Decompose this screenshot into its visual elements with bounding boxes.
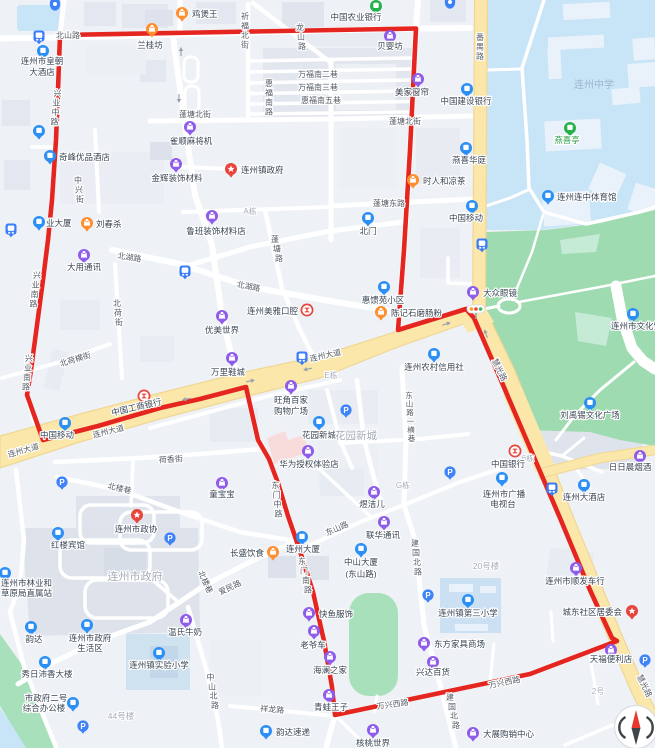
svg-text:连州市林业和: 连州市林业和 bbox=[1, 578, 52, 588]
svg-text:东方家具商场: 东方家具商场 bbox=[434, 639, 485, 649]
svg-text:连州市政府: 连州市政府 bbox=[108, 569, 163, 583]
svg-text:万福南二巷: 万福南二巷 bbox=[298, 69, 338, 79]
svg-text:惠馈苑小区: 惠馈苑小区 bbox=[362, 295, 405, 305]
svg-text:购物广场: 购物广场 bbox=[274, 406, 308, 416]
svg-text:天福便利店: 天福便利店 bbox=[590, 654, 633, 664]
svg-text:快鱼服饰: 快鱼服饰 bbox=[319, 609, 354, 619]
svg-text:贝婴坊: 贝婴坊 bbox=[377, 41, 403, 51]
svg-text:蓬塘北街: 蓬塘北街 bbox=[389, 116, 421, 126]
svg-text:兴达百货: 兴达百货 bbox=[416, 667, 451, 677]
svg-text:花园新城: 花园新城 bbox=[302, 430, 337, 440]
svg-text:大酒店: 大酒店 bbox=[29, 67, 55, 77]
svg-text:草原局直属站: 草原局直属站 bbox=[1, 588, 53, 598]
svg-text:祥龙路: 祥龙路 bbox=[260, 703, 285, 715]
svg-text:童宝宝: 童宝宝 bbox=[209, 489, 235, 499]
svg-text:G栋: G栋 bbox=[396, 480, 410, 490]
svg-text:花园新城: 花园新城 bbox=[335, 429, 377, 442]
svg-text:时人和凉茶: 时人和凉茶 bbox=[423, 176, 466, 186]
svg-text:连州中学: 连州中学 bbox=[574, 78, 614, 91]
svg-text:城东社区居委会: 城东社区居委会 bbox=[562, 607, 622, 617]
svg-text:生活区: 生活区 bbox=[77, 643, 103, 653]
svg-text:连州市广播: 连州市广播 bbox=[483, 489, 526, 499]
svg-text:连州市顺发车行: 连州市顺发车行 bbox=[545, 576, 605, 586]
svg-text:荷香街: 荷香街 bbox=[158, 453, 183, 465]
svg-text:刘春杀: 刘春杀 bbox=[96, 219, 122, 229]
svg-text:兰桂坊: 兰桂坊 bbox=[137, 40, 163, 50]
svg-text:电视台: 电视台 bbox=[490, 499, 516, 509]
svg-text:联华通讯: 联华通讯 bbox=[366, 530, 401, 540]
svg-text:惠福南路: 惠福南路 bbox=[265, 78, 273, 117]
svg-text:中国建设银行: 中国建设银行 bbox=[440, 96, 492, 106]
svg-text:温氏牛奶: 温氏牛奶 bbox=[168, 627, 202, 637]
svg-text:市政府二号: 市政府二号 bbox=[25, 693, 68, 703]
svg-text:连州市文化馆: 连州市文化馆 bbox=[611, 321, 655, 331]
svg-text:海澜之家: 海澜之家 bbox=[313, 665, 348, 675]
svg-text:老爷车: 老爷车 bbox=[300, 640, 326, 650]
svg-text:中山大厦: 中山大厦 bbox=[344, 557, 379, 567]
svg-text:青蛙王子: 青蛙王子 bbox=[314, 702, 349, 712]
svg-text:长盛饮食: 长盛饮食 bbox=[230, 548, 265, 558]
svg-text:连州市政协: 连州市政协 bbox=[115, 524, 158, 534]
svg-text:韵达: 韵达 bbox=[25, 634, 43, 644]
svg-text:连州农村信用社: 连州农村信用社 bbox=[404, 362, 464, 372]
svg-text:金辉装饰材料: 金辉装饰材料 bbox=[151, 173, 203, 183]
svg-text:雀顺麻将机: 雀顺麻将机 bbox=[170, 136, 213, 146]
svg-text:蓬塘东路: 蓬塘东路 bbox=[373, 198, 405, 208]
svg-text:大展购销中心: 大展购销中心 bbox=[483, 729, 535, 739]
svg-text:祈福北街: 祈福北街 bbox=[241, 11, 249, 50]
svg-text:连州大厦: 连州大厦 bbox=[286, 544, 321, 554]
svg-text:燕喜亭: 燕喜亭 bbox=[554, 135, 580, 145]
svg-text:优美世界: 优美世界 bbox=[205, 325, 240, 335]
svg-text:红楼宾馆: 红楼宾馆 bbox=[51, 540, 85, 550]
svg-text:连州镇实验小学: 连州镇实验小学 bbox=[129, 660, 189, 670]
svg-text:综合办公楼: 综合办公楼 bbox=[23, 703, 66, 713]
svg-text:2号: 2号 bbox=[592, 687, 604, 696]
svg-text:番禺路: 番禺路 bbox=[476, 32, 484, 61]
svg-text:A栋: A栋 bbox=[243, 206, 256, 216]
svg-text:连州大酒店: 连州大酒店 bbox=[563, 492, 606, 502]
svg-text:陈记石磨肠粉: 陈记石磨肠粉 bbox=[391, 308, 443, 318]
svg-text:万里鞋城: 万里鞋城 bbox=[211, 367, 246, 377]
svg-text:万福南三巷: 万福南三巷 bbox=[298, 82, 338, 92]
svg-text:连州市皇朝: 连州市皇朝 bbox=[21, 56, 64, 66]
svg-text:中国移动: 中国移动 bbox=[449, 213, 484, 223]
svg-text:业大厦: 业大厦 bbox=[46, 218, 72, 228]
svg-text:E栋: E栋 bbox=[324, 370, 337, 380]
svg-text:连州镇政府: 连州镇政府 bbox=[241, 165, 284, 175]
svg-text:核桃世界: 核桃世界 bbox=[356, 738, 391, 748]
svg-text:日日晨烟酒: 日日晨烟酒 bbox=[609, 462, 652, 472]
svg-text:北门: 北门 bbox=[359, 226, 376, 236]
svg-text:20号楼: 20号楼 bbox=[473, 561, 500, 571]
svg-text:连州连中体育馆: 连州连中体育馆 bbox=[557, 192, 617, 202]
svg-text:奇峰优品酒店: 奇峰优品酒店 bbox=[59, 152, 111, 162]
svg-text:鸡煲王: 鸡煲王 bbox=[192, 9, 218, 19]
svg-text:惠福南五巷: 惠福南五巷 bbox=[301, 95, 341, 105]
svg-text:秀日沛香大楼: 秀日沛香大楼 bbox=[21, 669, 73, 679]
svg-text:中国银行: 中国银行 bbox=[491, 459, 526, 469]
svg-text:蓬塘北街: 蓬塘北街 bbox=[179, 109, 211, 119]
svg-text:鲁班装饰材料店: 鲁班装饰材料店 bbox=[186, 226, 246, 236]
svg-text:华为授权体验店: 华为授权体验店 bbox=[279, 459, 339, 469]
svg-text:连州市政府: 连州市政府 bbox=[69, 633, 112, 643]
svg-text:刘禹锡文化广场: 刘禹锡文化广场 bbox=[560, 410, 620, 420]
svg-text:大众眼镜: 大众眼镜 bbox=[483, 288, 518, 298]
svg-text:旺角百家: 旺角百家 bbox=[274, 395, 309, 405]
svg-text:燕喜华庭: 燕喜华庭 bbox=[452, 155, 487, 165]
svg-text:44号楼: 44号楼 bbox=[108, 711, 135, 721]
svg-text:煜洁儿: 煜洁儿 bbox=[359, 499, 385, 509]
svg-text:(东山路): (东山路) bbox=[345, 569, 376, 579]
svg-text:连州镇第三小学: 连州镇第三小学 bbox=[438, 608, 498, 618]
svg-text:连州美雅口腔: 连州美雅口腔 bbox=[247, 306, 299, 316]
svg-text:中国移动: 中国移动 bbox=[40, 430, 75, 440]
svg-text:美家窗帘: 美家窗帘 bbox=[395, 87, 429, 97]
svg-text:大用通讯: 大用通讯 bbox=[67, 262, 102, 272]
svg-text:中国农业银行: 中国农业银行 bbox=[330, 12, 382, 22]
svg-text:北山路: 北山路 bbox=[56, 30, 80, 40]
svg-text:韵达速递: 韵达速递 bbox=[276, 727, 311, 737]
